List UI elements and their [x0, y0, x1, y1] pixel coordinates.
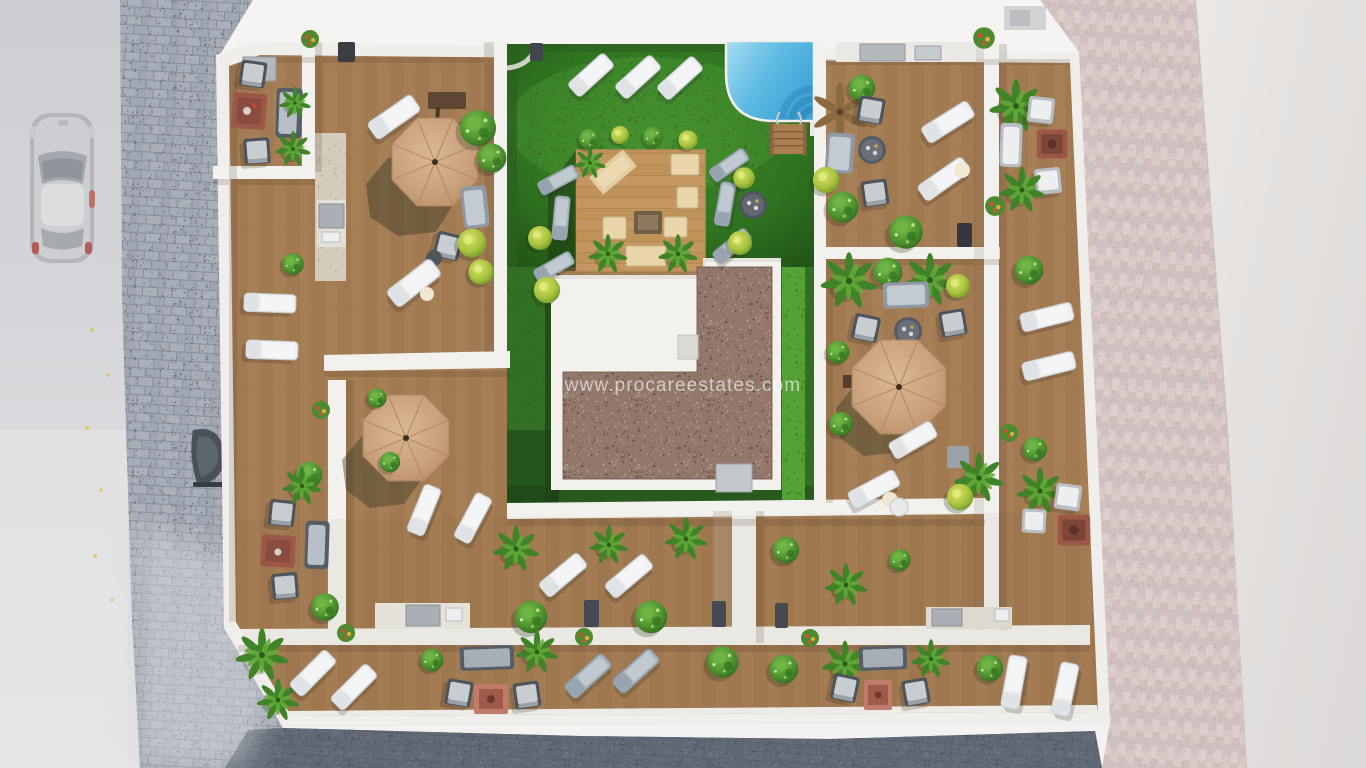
svg-text:www.procareestates.com: www.procareestates.com [564, 375, 801, 396]
